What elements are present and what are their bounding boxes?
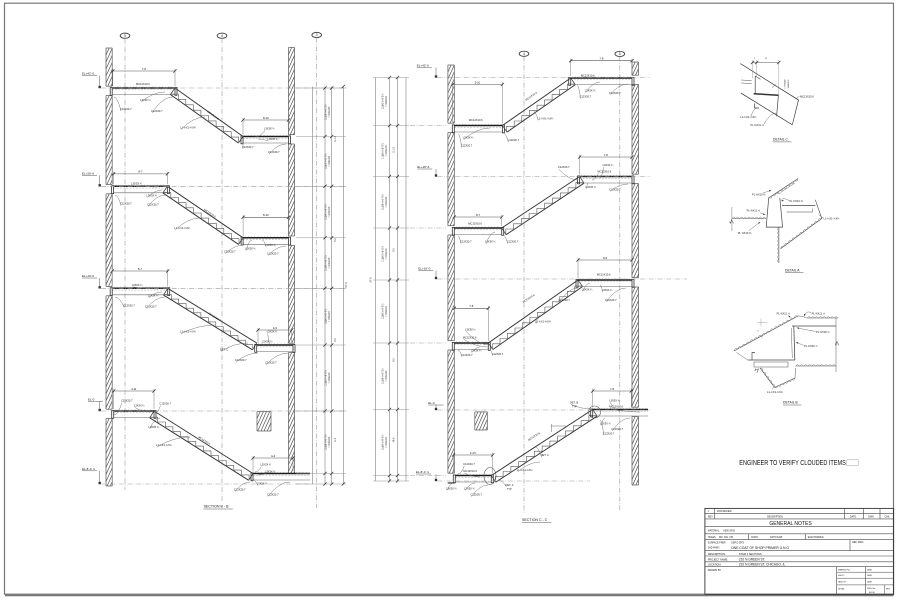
svg-text:MC12X10.6: MC12X10.6 [469,118,483,122]
svg-text:EL-0: EL-0 [88,397,95,401]
svg-text:MC12X10.6: MC12X10.6 [800,95,814,99]
svg-text:DATE: DATE [850,516,856,519]
svg-text:C12X20.7: C12X20.7 [242,145,254,149]
svg-text:ASTM A325: ASTM A325 [770,536,783,539]
svg-text:L3X3X ¼: L3X3X ¼ [131,182,143,186]
svg-text:EL+26'-6: EL+26'-6 [417,165,429,169]
svg-text:L3X3X ¼: L3X3X ¼ [586,185,598,189]
svg-text:210 N GREEN ST.: 210 N GREEN ST. [739,558,765,562]
svg-text:4: 4 [523,52,525,56]
svg-text:DATE: DATE [867,581,873,584]
svg-text:EL-0: EL-0 [428,401,435,405]
svg-text:= RISERS: = RISERS [328,436,331,447]
svg-text:DATE: DATE [867,568,873,571]
svg-text:1 TREAD: 1 TREAD [784,79,787,89]
svg-text:DETAIL C: DETAIL C [773,138,788,142]
svg-text:L3X3X ¼: L3X3X ¼ [465,327,477,331]
svg-text:C12X20.7: C12X20.7 [558,298,570,302]
svg-text:= RISERS: = RISERS [328,156,331,167]
svg-text:B-1/B: B-1/B [869,592,875,594]
svg-text:DWG. No: DWG. No [867,588,875,590]
svg-text:11-10: 11-10 [334,135,337,142]
svg-text:C12X20.7: C12X20.7 [234,488,246,492]
svg-text:C12X20.7: C12X20.7 [471,493,483,497]
svg-text:7-8: 7-8 [469,304,473,308]
svg-text:SPACES: SPACES [787,79,790,88]
svg-text:PL ⅜X11 ⅞: PL ⅜X11 ⅞ [747,209,761,213]
svg-text:PL ⅜X11-⅞: PL ⅜X11-⅞ [751,123,765,127]
svg-text:EL+16'-0: EL+16'-0 [418,267,430,271]
svg-text:EL+42'-0: EL+42'-0 [82,72,94,76]
svg-text:MC12X10.6: MC12X10.6 [463,469,477,473]
svg-text:DET. C: DET. C [541,453,549,457]
svg-text:EL+42'-0: EL+42'-0 [417,64,429,68]
svg-text:C12X20.7: C12X20.7 [145,305,157,309]
svg-text:L3X3X ¼: L3X3X ¼ [464,486,476,490]
svg-text:EL+16'-0: EL+16'-0 [82,274,94,278]
svg-text:L3X3X ¼: L3X3X ¼ [134,404,146,408]
svg-text:DATE: DATE [867,574,873,577]
svg-text:C12X20.7: C12X20.7 [123,304,135,308]
svg-text:C12X20.7: C12X20.7 [609,91,621,95]
svg-text:L3X3X ¼: L3X3X ¼ [260,463,272,467]
svg-text:8-7: 8-7 [138,170,142,174]
svg-text:2ND PAINT:: 2ND PAINT: [708,547,721,550]
svg-text:2-10: 2-10 [475,80,481,84]
svg-text:PROJECT NAME:: PROJECT NAME: [708,558,729,561]
svg-text:C12X20.7: C12X20.7 [605,298,617,302]
svg-text:DETAIL A: DETAIL A [785,268,800,272]
svg-text:C12X20.7: C12X20.7 [508,138,520,142]
svg-text:C12X20.7: C12X20.7 [603,431,615,435]
svg-text:C12X20.7: C12X20.7 [463,462,475,466]
svg-text:C12X20.7: C12X20.7 [120,202,132,206]
svg-text:EL-8'-0 ⅞: EL-8'-0 ⅞ [82,467,95,471]
svg-text:= RISERS: = RISERS [385,437,388,448]
svg-text:L1-¾X1-¾X¼: L1-¾X1-¾X¼ [174,226,191,230]
svg-text:MC12X10.6: MC12X10.6 [609,405,623,409]
svg-text:SSPC-SP3: SSPC-SP3 [731,541,744,545]
svg-text:DET. A: DET. A [506,483,514,487]
svg-text:SECTION C - C: SECTION C - C [522,518,548,522]
svg-text:FOR REVIEW: FOR REVIEW [717,511,732,513]
svg-text:LOCATION:: LOCATION: [708,564,722,567]
svg-text:MATERIAL:: MATERIAL: [708,530,720,533]
svg-text:CONN:: CONN: [751,537,759,539]
svg-text:= RISERS: = RISERS [385,306,388,317]
svg-text:DIA. DIA. U/N: DIA. DIA. U/N [719,536,734,539]
svg-text:HOLES:: HOLES: [708,537,717,539]
svg-text:L3X3X ¼: L3X3X ¼ [265,470,277,474]
svg-text:11-10: 11-10 [393,146,396,153]
svg-text:5: 5 [619,52,621,56]
svg-text:PL ⅜X20 ⅞: PL ⅜X20 ⅞ [804,344,818,348]
svg-text:EL+26'-6: EL+26'-6 [82,171,94,175]
svg-text:STAIR 3 SECTIONS: STAIR 3 SECTIONS [739,553,762,556]
svg-text:L3X3X ¼: L3X3X ¼ [149,425,161,429]
svg-text:ONE COAT OF SHOP PRIMER U.N.O: ONE COAT OF SHOP PRIMER U.N.O [731,546,789,550]
svg-text:C12X20.7: C12X20.7 [267,493,279,497]
svg-text:SHOP#: SHOP# [838,575,845,577]
svg-text:L1-¾X1-¾X¼: L1-¾X1-¾X¼ [767,390,784,394]
svg-text:L3X3X ¼: L3X3X ¼ [609,399,621,403]
svg-text:L1-¾X1-¾X¼: L1-¾X1-¾X¼ [156,443,173,447]
svg-text:DRAWN BY: DRAWN BY [708,569,722,572]
svg-text:4-4½: 4-4½ [470,451,477,455]
svg-text:7-8: 7-8 [599,57,603,61]
svg-text:= RISERS: = RISERS [328,311,331,322]
svg-text:= RISERS: = RISERS [328,206,331,217]
svg-text:= RISERS: = RISERS [385,96,388,107]
svg-text:8-10: 8-10 [263,213,269,217]
svg-text:8-7: 8-7 [138,267,142,271]
svg-text:C12X20.7: C12X20.7 [461,144,473,148]
svg-text:= RISERS: = RISERS [385,370,388,381]
svg-text:PL ⅜X10 ⅜: PL ⅜X10 ⅜ [789,199,803,203]
svg-text:TYP: TYP [507,488,512,491]
svg-text:L3X3X ¼: L3X3X ¼ [132,283,144,287]
svg-text:= RISERS: = RISERS [385,196,388,207]
svg-text:SECTION B - B: SECTION B - B [204,505,230,509]
svg-text:EL-8'-0 ⅞: EL-8'-0 ⅞ [416,470,429,474]
svg-text:PL ⅜X10 ⅜: PL ⅜X10 ⅜ [752,193,766,197]
svg-text:3: 3 [316,33,318,37]
svg-text:MC12X10.6: MC12X10.6 [581,74,595,78]
svg-text:L3X3X ¼: L3X3X ¼ [268,137,280,141]
svg-text:DWN: DWN [868,517,874,519]
svg-text:C12X20.7: C12X20.7 [120,107,132,111]
svg-text:GENERAL NOTES: GENERAL NOTES [769,521,812,527]
svg-text:SURFACE PREP:: SURFACE PREP: [708,542,727,545]
svg-text:57'-8: 57'-8 [370,277,373,283]
svg-text:8-10: 8-10 [263,116,269,120]
svg-text:DESCRIPTION:: DESCRIPTION: [708,553,726,556]
svg-text:MC12X10.6: MC12X10.6 [597,273,611,277]
svg-text:7-8: 7-8 [604,153,608,157]
svg-text:C12X20.7: C12X20.7 [580,95,592,99]
svg-text:C12X20.7: C12X20.7 [121,399,133,403]
svg-text:L1-¾X1-¾X¼: L1-¾X1-¾X¼ [740,115,757,119]
svg-text:C12X20.7: C12X20.7 [147,203,159,207]
svg-text:4-4: 4-4 [271,454,275,458]
svg-text:4-11: 4-11 [131,387,137,391]
svg-text:L3X3X ¼: L3X3X ¼ [264,127,276,131]
svg-text:11-4: 11-4 [334,437,337,442]
svg-text:L3X3X ¼: L3X3X ¼ [585,88,597,92]
svg-text:L3X3X ¼: L3X3X ¼ [602,288,614,292]
svg-text:L1-¾X1-¾X¼: L1-¾X1-¾X¼ [535,320,552,324]
svg-text:L3X3X ¼: L3X3X ¼ [446,486,458,490]
svg-text:57'-8: 57'-8 [345,282,348,288]
svg-text:5: 5 [124,34,126,38]
svg-text:= RISERS: = RISERS [385,248,388,259]
svg-text:C12X20.7: C12X20.7 [151,109,163,113]
svg-text:PL ⅜X10 ⅜: PL ⅜X10 ⅜ [738,231,752,235]
svg-text:48-6: 48-6 [393,437,396,442]
svg-text:L1-¾X1-¾X¼: L1-¾X1-¾X¼ [537,116,554,120]
svg-text:MC12X10.6: MC12X10.6 [598,170,612,174]
svg-text:DETAIL B: DETAIL B [783,401,798,405]
svg-text:C12X20.7: C12X20.7 [160,402,172,406]
svg-text:C12X20.7: C12X20.7 [460,240,472,244]
svg-text:C12X20.7: C12X20.7 [461,353,473,357]
svg-text:= RISERS: = RISERS [328,106,331,117]
svg-text:L3X3X ¼: L3X3X ¼ [257,482,269,486]
svg-text:8-9: 8-9 [603,256,607,260]
svg-text:PL ⅜X18 ⅞: PL ⅜X18 ⅞ [816,330,830,334]
svg-text:PL ⅜X11 ⅞: PL ⅜X11 ⅞ [812,311,826,315]
svg-text:L1-¾X1-¾X¼: L1-¾X1-¾X¼ [824,216,841,220]
svg-text:DET. B: DET. B [570,401,578,405]
svg-text:A500 GR.B: A500 GR.B [723,530,735,533]
svg-text:4-9: 4-9 [273,326,277,330]
svg-text:= RISERS: = RISERS [385,145,388,156]
svg-text:7-8: 7-8 [610,387,614,391]
svg-text:C12X20.7: C12X20.7 [492,352,504,356]
svg-text:REV: REV [708,517,713,519]
svg-text:MC12X10.6: MC12X10.6 [468,221,482,225]
svg-text:7-8: 7-8 [142,67,146,71]
svg-text:TYP: TYP [572,406,577,409]
svg-text:MC12X10.6: MC12X10.6 [463,335,477,339]
svg-text:L1-¾X1-¾X¼: L1-¾X1-¾X¼ [180,126,197,130]
svg-text:C12X20.7: C12X20.7 [558,165,570,169]
svg-text:210 N GREEN ST, CHICAGO, IL: 210 N GREEN ST, CHICAGO, IL [739,563,786,567]
svg-text:L3X3X ¼: L3X3X ¼ [262,340,274,344]
svg-text:L3X3X ¼: L3X3X ¼ [265,243,277,247]
svg-text:= RISERS: = RISERS [328,372,331,383]
svg-text:MARKED FILL: MARKED FILL [838,568,850,571]
svg-text:TAKE UP: TAKE UP [838,581,847,584]
svg-text:L3X3X ¼: L3X3X ¼ [603,163,615,167]
svg-text:8-7: 8-7 [476,213,480,217]
svg-text:DETAIL: DETAIL [838,588,844,591]
svg-text:CHK: CHK [885,517,890,519]
svg-text:MC12X10.6: MC12X10.6 [136,82,150,86]
svg-text:4: 4 [221,34,223,38]
svg-text:L1-¾X1-¾X¼: L1-¾X1-¾X¼ [517,468,534,472]
svg-text:C12X20.7: C12X20.7 [507,240,519,244]
svg-text:PL ⅜X11 ⅞: PL ⅜X11 ⅞ [777,311,791,315]
svg-text:ENGINEER TO VERIFY CLOUDED ITE: ENGINEER TO VERIFY CLOUDED ITEMS [739,458,846,467]
svg-text:REF. DWG: REF. DWG [852,542,863,544]
svg-text:= RISERS: = RISERS [328,257,331,268]
svg-text:C12X20.7: C12X20.7 [611,427,623,431]
svg-text:ELECTRODES:: ELECTRODES: [808,537,825,539]
svg-text:L3X3X ¼: L3X3X ¼ [267,330,279,334]
svg-text:DESCRIPTION: DESCRIPTION [767,517,783,519]
